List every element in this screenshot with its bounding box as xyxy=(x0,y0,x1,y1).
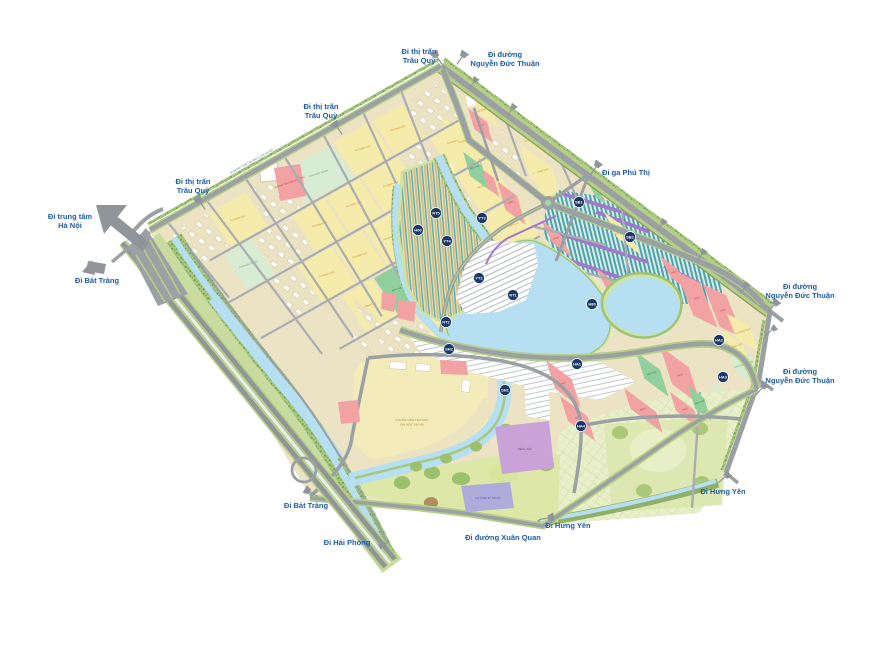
svg-text:Đi Hải Phòng: Đi Hải Phòng xyxy=(324,538,371,547)
svg-text:Nguyễn Đức Thuận: Nguyễn Đức Thuận xyxy=(765,291,835,300)
svg-text:Đi Bát Tràng: Đi Bát Tràng xyxy=(284,501,329,510)
svg-text:Đi Hưng Yên: Đi Hưng Yên xyxy=(700,487,746,496)
svg-text:ĐẠI HỌC VINUNI: ĐẠI HỌC VINUNI xyxy=(400,423,424,427)
svg-text:YT3: YT3 xyxy=(478,216,486,221)
svg-text:HA4: HA4 xyxy=(577,424,586,429)
svg-text:Nguyễn Đức Thuận: Nguyễn Đức Thuận xyxy=(470,59,540,68)
svg-text:NT1: NT1 xyxy=(509,293,517,298)
svg-text:HA2: HA2 xyxy=(715,338,724,343)
svg-text:Đi ga Phú Thị: Đi ga Phú Thị xyxy=(602,168,650,177)
svg-text:SB1: SB1 xyxy=(575,200,584,205)
svg-text:Đi thị trấn: Đi thị trấn xyxy=(402,47,437,56)
svg-text:Đi đường Xuân Quan: Đi đường Xuân Quan xyxy=(465,533,541,542)
svg-text:H06: H06 xyxy=(414,228,422,233)
svg-text:Đi thị trấn: Đi thị trấn xyxy=(176,177,211,186)
svg-text:Đi Bát Tràng: Đi Bát Tràng xyxy=(75,276,120,285)
svg-text:SH1: SH1 xyxy=(501,388,510,393)
svg-text:HA1: HA1 xyxy=(573,362,582,367)
svg-text:Đi thị trấn: Đi thị trấn xyxy=(304,102,339,111)
svg-text:SB2: SB2 xyxy=(626,235,635,240)
svg-text:Đi Hưng Yên: Đi Hưng Yên xyxy=(545,521,591,530)
svg-text:Trâu Quỳ: Trâu Quỳ xyxy=(177,186,210,195)
svg-text:SH2: SH2 xyxy=(445,347,454,352)
svg-text:NT2: NT2 xyxy=(442,320,450,325)
svg-text:Đi trung tâm: Đi trung tâm xyxy=(48,212,92,221)
svg-text:Đi đường: Đi đường xyxy=(488,50,523,59)
svg-text:NT5: NT5 xyxy=(432,211,440,216)
svg-text:H80: H80 xyxy=(588,302,596,307)
svg-text:KHUÔN VIÊN TRƯỜNG: KHUÔN VIÊN TRƯỜNG xyxy=(395,417,429,422)
svg-text:Hà Nội: Hà Nội xyxy=(58,221,82,230)
svg-text:HA3: HA3 xyxy=(719,375,728,380)
svg-text:Đi đường: Đi đường xyxy=(783,282,818,291)
svg-text:Trâu Quỳ: Trâu Quỳ xyxy=(305,111,338,120)
svg-text:YT2: YT2 xyxy=(475,276,483,281)
svg-text:YT4: YT4 xyxy=(443,239,451,244)
svg-text:Nguyễn Đức Thuận: Nguyễn Đức Thuận xyxy=(765,376,835,385)
svg-text:Đi đường: Đi đường xyxy=(783,367,818,376)
svg-text:Trâu Quỳ: Trâu Quỳ xyxy=(403,56,436,65)
